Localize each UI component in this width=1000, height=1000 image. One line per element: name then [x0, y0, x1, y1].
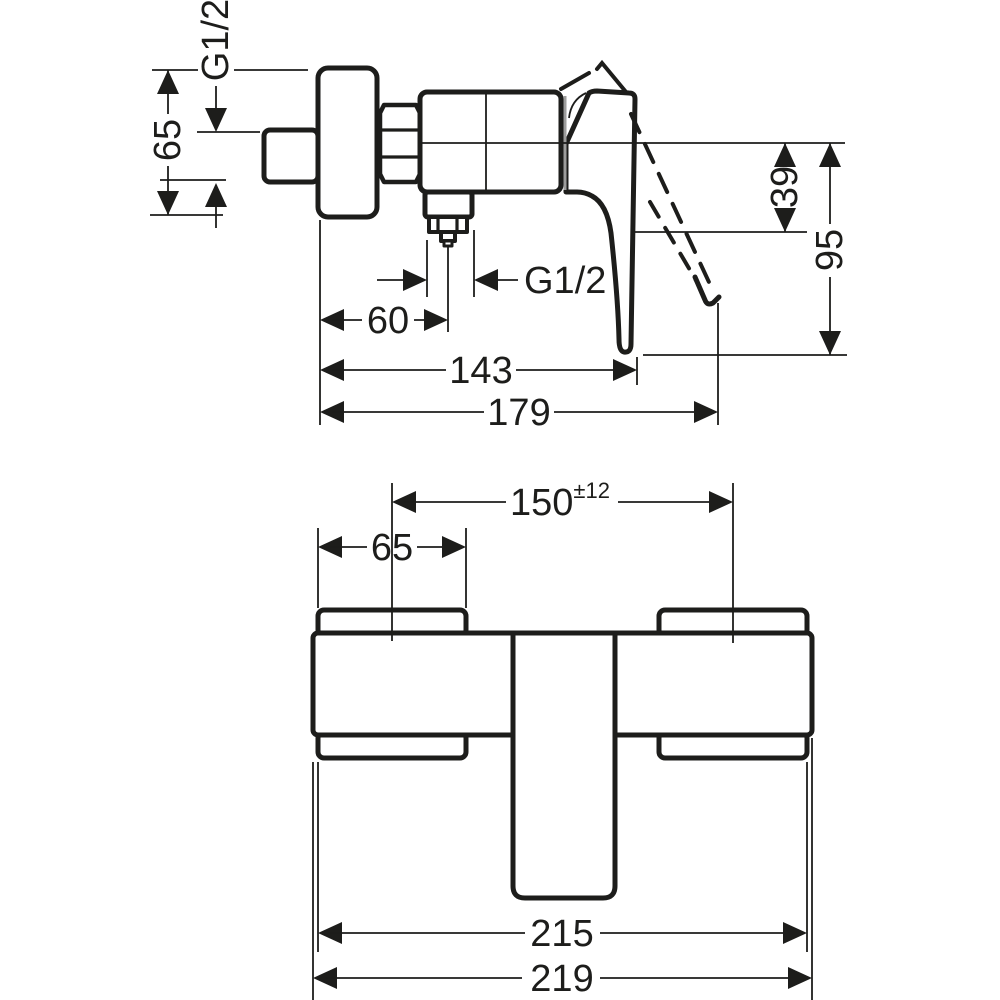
- dim-escutcheon-size: 65: [147, 70, 189, 215]
- dim-wall-connection-thread: G1/2: [195, 0, 237, 228]
- dim-label-65-front: 65: [371, 527, 413, 569]
- dim-label-39: 39: [764, 166, 806, 208]
- dim-label-179: 179: [487, 392, 550, 434]
- escutcheon-plate: [318, 68, 377, 217]
- dim-label-escutcheon-size: 65: [147, 119, 189, 161]
- dim-65-front: 65: [318, 527, 466, 569]
- technical-drawing-page: G1/2 65 G1/2 60: [0, 0, 1000, 1000]
- dim-label-219: 219: [530, 958, 593, 1000]
- dim-179: 179: [320, 392, 718, 434]
- dim-60: 60: [320, 300, 448, 342]
- side-view: G1/2 65 G1/2 60: [147, 0, 851, 434]
- handle-lever: [566, 91, 635, 352]
- dim-219: 219: [313, 958, 812, 1000]
- mixer-body: [420, 92, 561, 192]
- dim-215: 215: [318, 913, 807, 955]
- technical-drawing: G1/2 65 G1/2 60: [0, 0, 1000, 1000]
- dim-95: 95: [809, 143, 851, 355]
- dim-label-60: 60: [367, 300, 409, 342]
- dim-label-150: 150±12: [510, 478, 610, 525]
- shower-outlet: [425, 192, 472, 246]
- front-view: 150±12 65 215 219: [313, 478, 812, 1000]
- union-nut: [380, 105, 420, 182]
- dim-label-95: 95: [809, 229, 851, 271]
- wall-connector-nipple: [264, 130, 318, 182]
- dim-143: 143: [320, 350, 637, 392]
- dim-outlet-thread: G1/2: [377, 260, 606, 302]
- dim-label-wall-thread: G1/2: [195, 0, 237, 81]
- dim-label-143: 143: [449, 350, 512, 392]
- dim-150: 150±12: [392, 478, 733, 525]
- dim-label-215: 215: [530, 913, 593, 955]
- handle-front: [513, 633, 615, 898]
- mixer-front-profile: [313, 610, 812, 898]
- dim-39: 39: [764, 143, 806, 232]
- dim-label-outlet-thread: G1/2: [524, 260, 606, 302]
